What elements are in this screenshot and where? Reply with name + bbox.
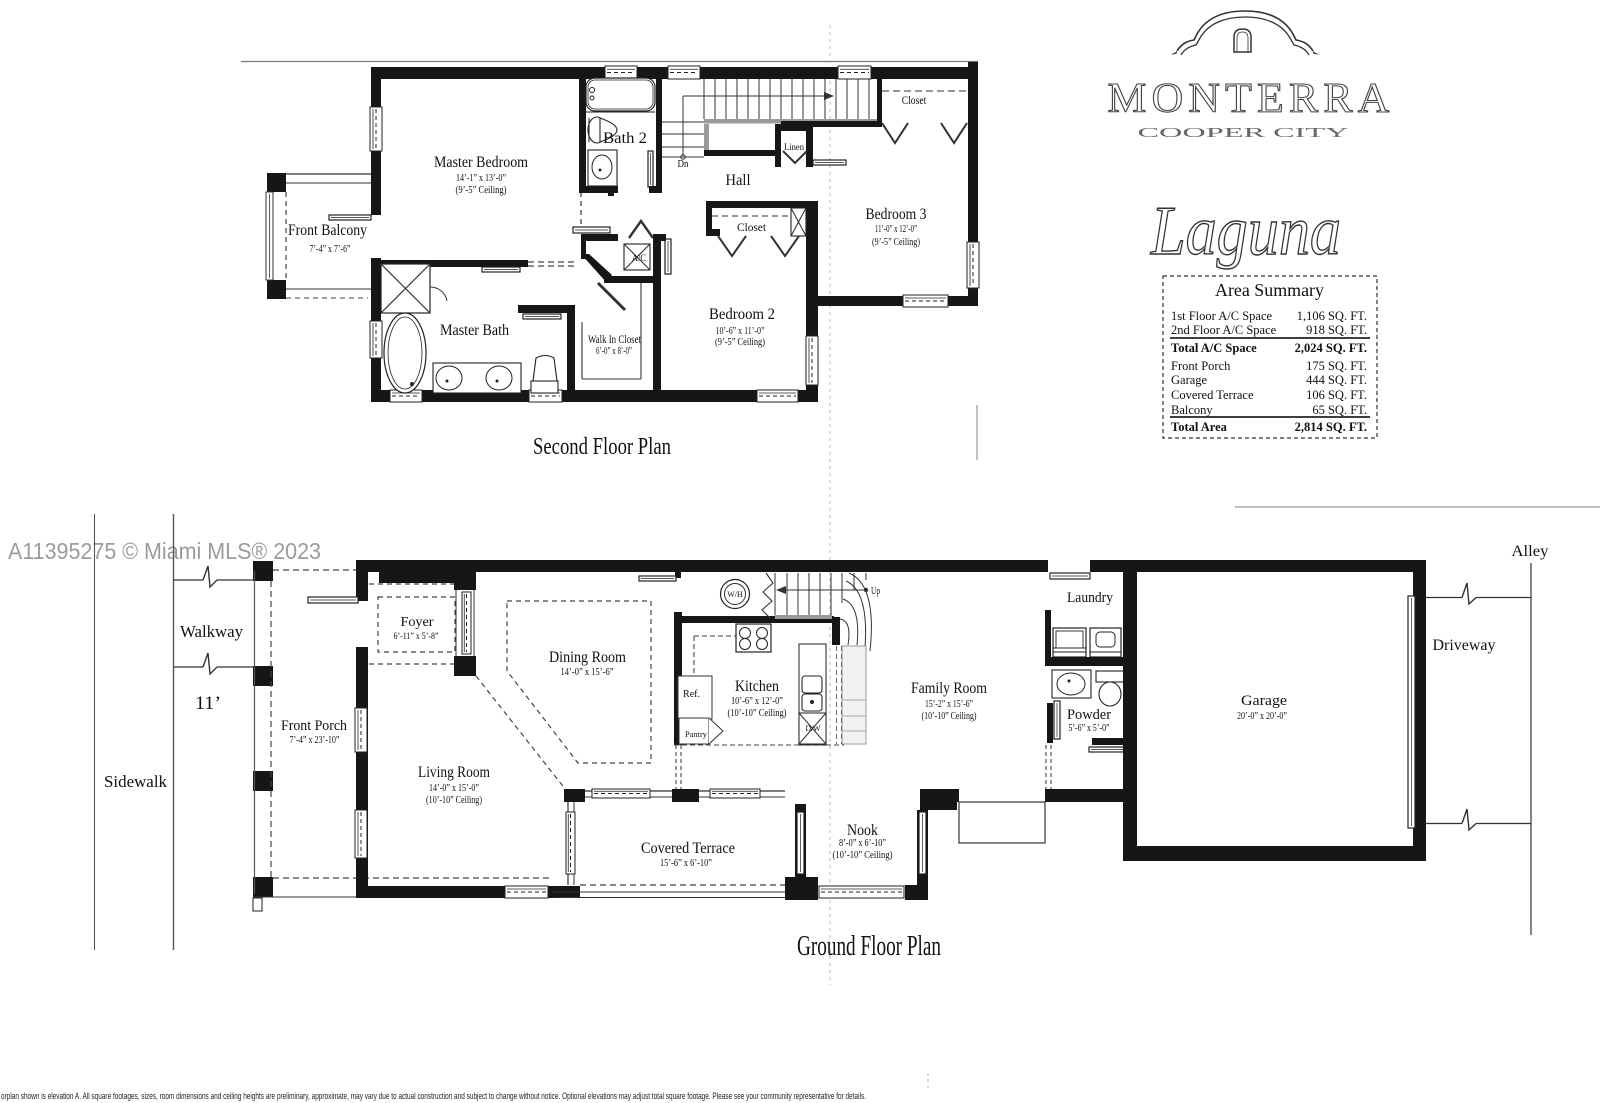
- svg-text:Up: Up: [871, 586, 880, 597]
- svg-text:1,106 SQ. FT.: 1,106 SQ. FT.: [1297, 309, 1367, 323]
- svg-text:(10’-10” Ceiling): (10’-10” Ceiling): [833, 850, 893, 861]
- svg-text:(9’-5” Ceiling): (9’-5” Ceiling): [715, 337, 765, 348]
- svg-text:106 SQ. FT.: 106 SQ. FT.: [1306, 388, 1367, 402]
- svg-text:(10’-10” Ceiling): (10’-10” Ceiling): [426, 795, 482, 806]
- svg-text:7’-4” x 23’-10”: 7’-4” x 23’-10”: [290, 735, 340, 746]
- svg-text:918 SQ. FT.: 918 SQ. FT.: [1306, 323, 1367, 337]
- svg-text:Front Porch: Front Porch: [1171, 359, 1231, 373]
- svg-text:Laundry: Laundry: [1067, 590, 1113, 606]
- svg-text:2,814 SQ. FT.: 2,814 SQ. FT.: [1295, 420, 1367, 434]
- svg-text:Laguna: Laguna: [1150, 193, 1341, 270]
- svg-text:Driveway: Driveway: [1433, 637, 1496, 654]
- svg-text:175 SQ. FT.: 175 SQ. FT.: [1306, 359, 1367, 373]
- svg-text:14’-1” x 13’-0”: 14’-1” x 13’-0”: [456, 173, 506, 184]
- svg-text:Second Floor Plan: Second Floor Plan: [533, 434, 671, 460]
- svg-text:A/C: A/C: [632, 254, 646, 264]
- svg-text:A11395275 © Miami MLS® 2023: A11395275 © Miami MLS® 2023: [8, 538, 321, 564]
- svg-text:Linen: Linen: [784, 143, 804, 153]
- svg-text:Front Balcony: Front Balcony: [288, 222, 367, 239]
- svg-text:orplan shown is elevation A. A: orplan shown is elevation A. All square …: [1, 1091, 866, 1102]
- svg-text:11’: 11’: [195, 693, 221, 714]
- svg-text:Sidewalk: Sidewalk: [104, 772, 167, 791]
- svg-text:(10’-10” Ceiling): (10’-10” Ceiling): [922, 711, 977, 722]
- svg-text:15’-2” x 15’-6”: 15’-2” x 15’-6”: [925, 699, 973, 710]
- svg-text:Closet: Closet: [902, 93, 927, 107]
- svg-text:1st Floor A/C Space: 1st Floor A/C Space: [1171, 309, 1272, 323]
- svg-text:Living Room: Living Room: [418, 764, 490, 781]
- svg-text:Walkway: Walkway: [180, 622, 243, 641]
- svg-text:10’-6” x 11’-0”: 10’-6” x 11’-0”: [716, 326, 765, 337]
- svg-text:MONTERRA: MONTERRA: [1108, 76, 1395, 122]
- svg-text:5’-6” x 5’-0”: 5’-6” x 5’-0”: [1069, 723, 1110, 734]
- svg-text:Front Porch: Front Porch: [281, 718, 347, 734]
- svg-text:Bedroom 3: Bedroom 3: [866, 206, 927, 223]
- svg-text:Family Room: Family Room: [911, 680, 987, 697]
- svg-text:Bedroom 2: Bedroom 2: [709, 306, 775, 323]
- svg-text:14’-0” x 15’-0”: 14’-0” x 15’-0”: [429, 783, 479, 794]
- svg-text:65 SQ. FT.: 65 SQ. FT.: [1312, 403, 1367, 417]
- svg-text:15’-6” x 6’-10”: 15’-6” x 6’-10”: [660, 858, 712, 869]
- svg-text:Covered Terrace: Covered Terrace: [641, 840, 735, 857]
- svg-text:Pantry: Pantry: [685, 729, 708, 739]
- svg-text:W/H: W/H: [727, 590, 743, 599]
- svg-text:Master Bedroom: Master Bedroom: [434, 154, 528, 171]
- svg-text:Alley: Alley: [1512, 543, 1549, 560]
- svg-text:Nook: Nook: [847, 822, 878, 839]
- svg-text:14’-0” x 15’-6”: 14’-0” x 15’-6”: [561, 667, 614, 678]
- svg-text:6’-0” x 8’-0”: 6’-0” x 8’-0”: [596, 346, 632, 357]
- svg-text:444 SQ. FT.: 444 SQ. FT.: [1306, 373, 1367, 387]
- svg-text:(9’-5” Ceiling): (9’-5” Ceiling): [456, 185, 507, 196]
- svg-text:6’-11” x 5’-8”: 6’-11” x 5’-8”: [394, 632, 439, 642]
- svg-text:(10’-10” Ceiling): (10’-10” Ceiling): [728, 708, 787, 719]
- svg-text:Total A/C Space: Total A/C Space: [1171, 341, 1257, 355]
- svg-text:Ground Floor Plan: Ground Floor Plan: [797, 931, 941, 962]
- svg-text:COOPER CITY: COOPER CITY: [1138, 126, 1349, 141]
- svg-text:Garage: Garage: [1171, 373, 1208, 387]
- svg-text:Bath 2: Bath 2: [603, 130, 647, 147]
- svg-text:Dining Room: Dining Room: [549, 649, 626, 666]
- svg-text:Master Bath: Master Bath: [440, 322, 509, 339]
- svg-text:Garage: Garage: [1241, 693, 1287, 709]
- svg-text:2,024 SQ. FT.: 2,024 SQ. FT.: [1295, 341, 1367, 355]
- svg-text:Dn: Dn: [678, 159, 689, 170]
- svg-text:Ref.: Ref.: [683, 688, 700, 700]
- svg-text:Powder: Powder: [1067, 707, 1111, 723]
- svg-text:20’-0” x 20’-0”: 20’-0” x 20’-0”: [1237, 711, 1287, 722]
- svg-text:(9’-5” Ceiling): (9’-5” Ceiling): [872, 237, 920, 248]
- svg-text:Covered Terrace: Covered Terrace: [1171, 388, 1254, 402]
- svg-text:8’-0” x 6’-10”: 8’-0” x 6’-10”: [839, 838, 886, 849]
- svg-text:Balcony: Balcony: [1171, 403, 1213, 417]
- svg-text:Hall: Hall: [726, 172, 752, 189]
- svg-text:Total Area: Total Area: [1171, 420, 1228, 434]
- svg-text:Walk In Closet: Walk In Closet: [588, 332, 641, 346]
- svg-text:2nd Floor A/C Space: 2nd Floor A/C Space: [1171, 323, 1277, 337]
- svg-text:Kitchen: Kitchen: [735, 678, 779, 695]
- svg-text:7’-4” x 7’-6”: 7’-4” x 7’-6”: [310, 244, 351, 255]
- svg-text:11’-0” x 12’-0”: 11’-0” x 12’-0”: [875, 224, 917, 235]
- svg-text:Area Summary: Area Summary: [1215, 280, 1324, 300]
- svg-text:10’-6” x 12’-0”: 10’-6” x 12’-0”: [731, 696, 783, 707]
- svg-text:Foyer: Foyer: [401, 615, 434, 630]
- svg-text:D/W: D/W: [806, 723, 821, 733]
- svg-text:Closet: Closet: [737, 220, 767, 234]
